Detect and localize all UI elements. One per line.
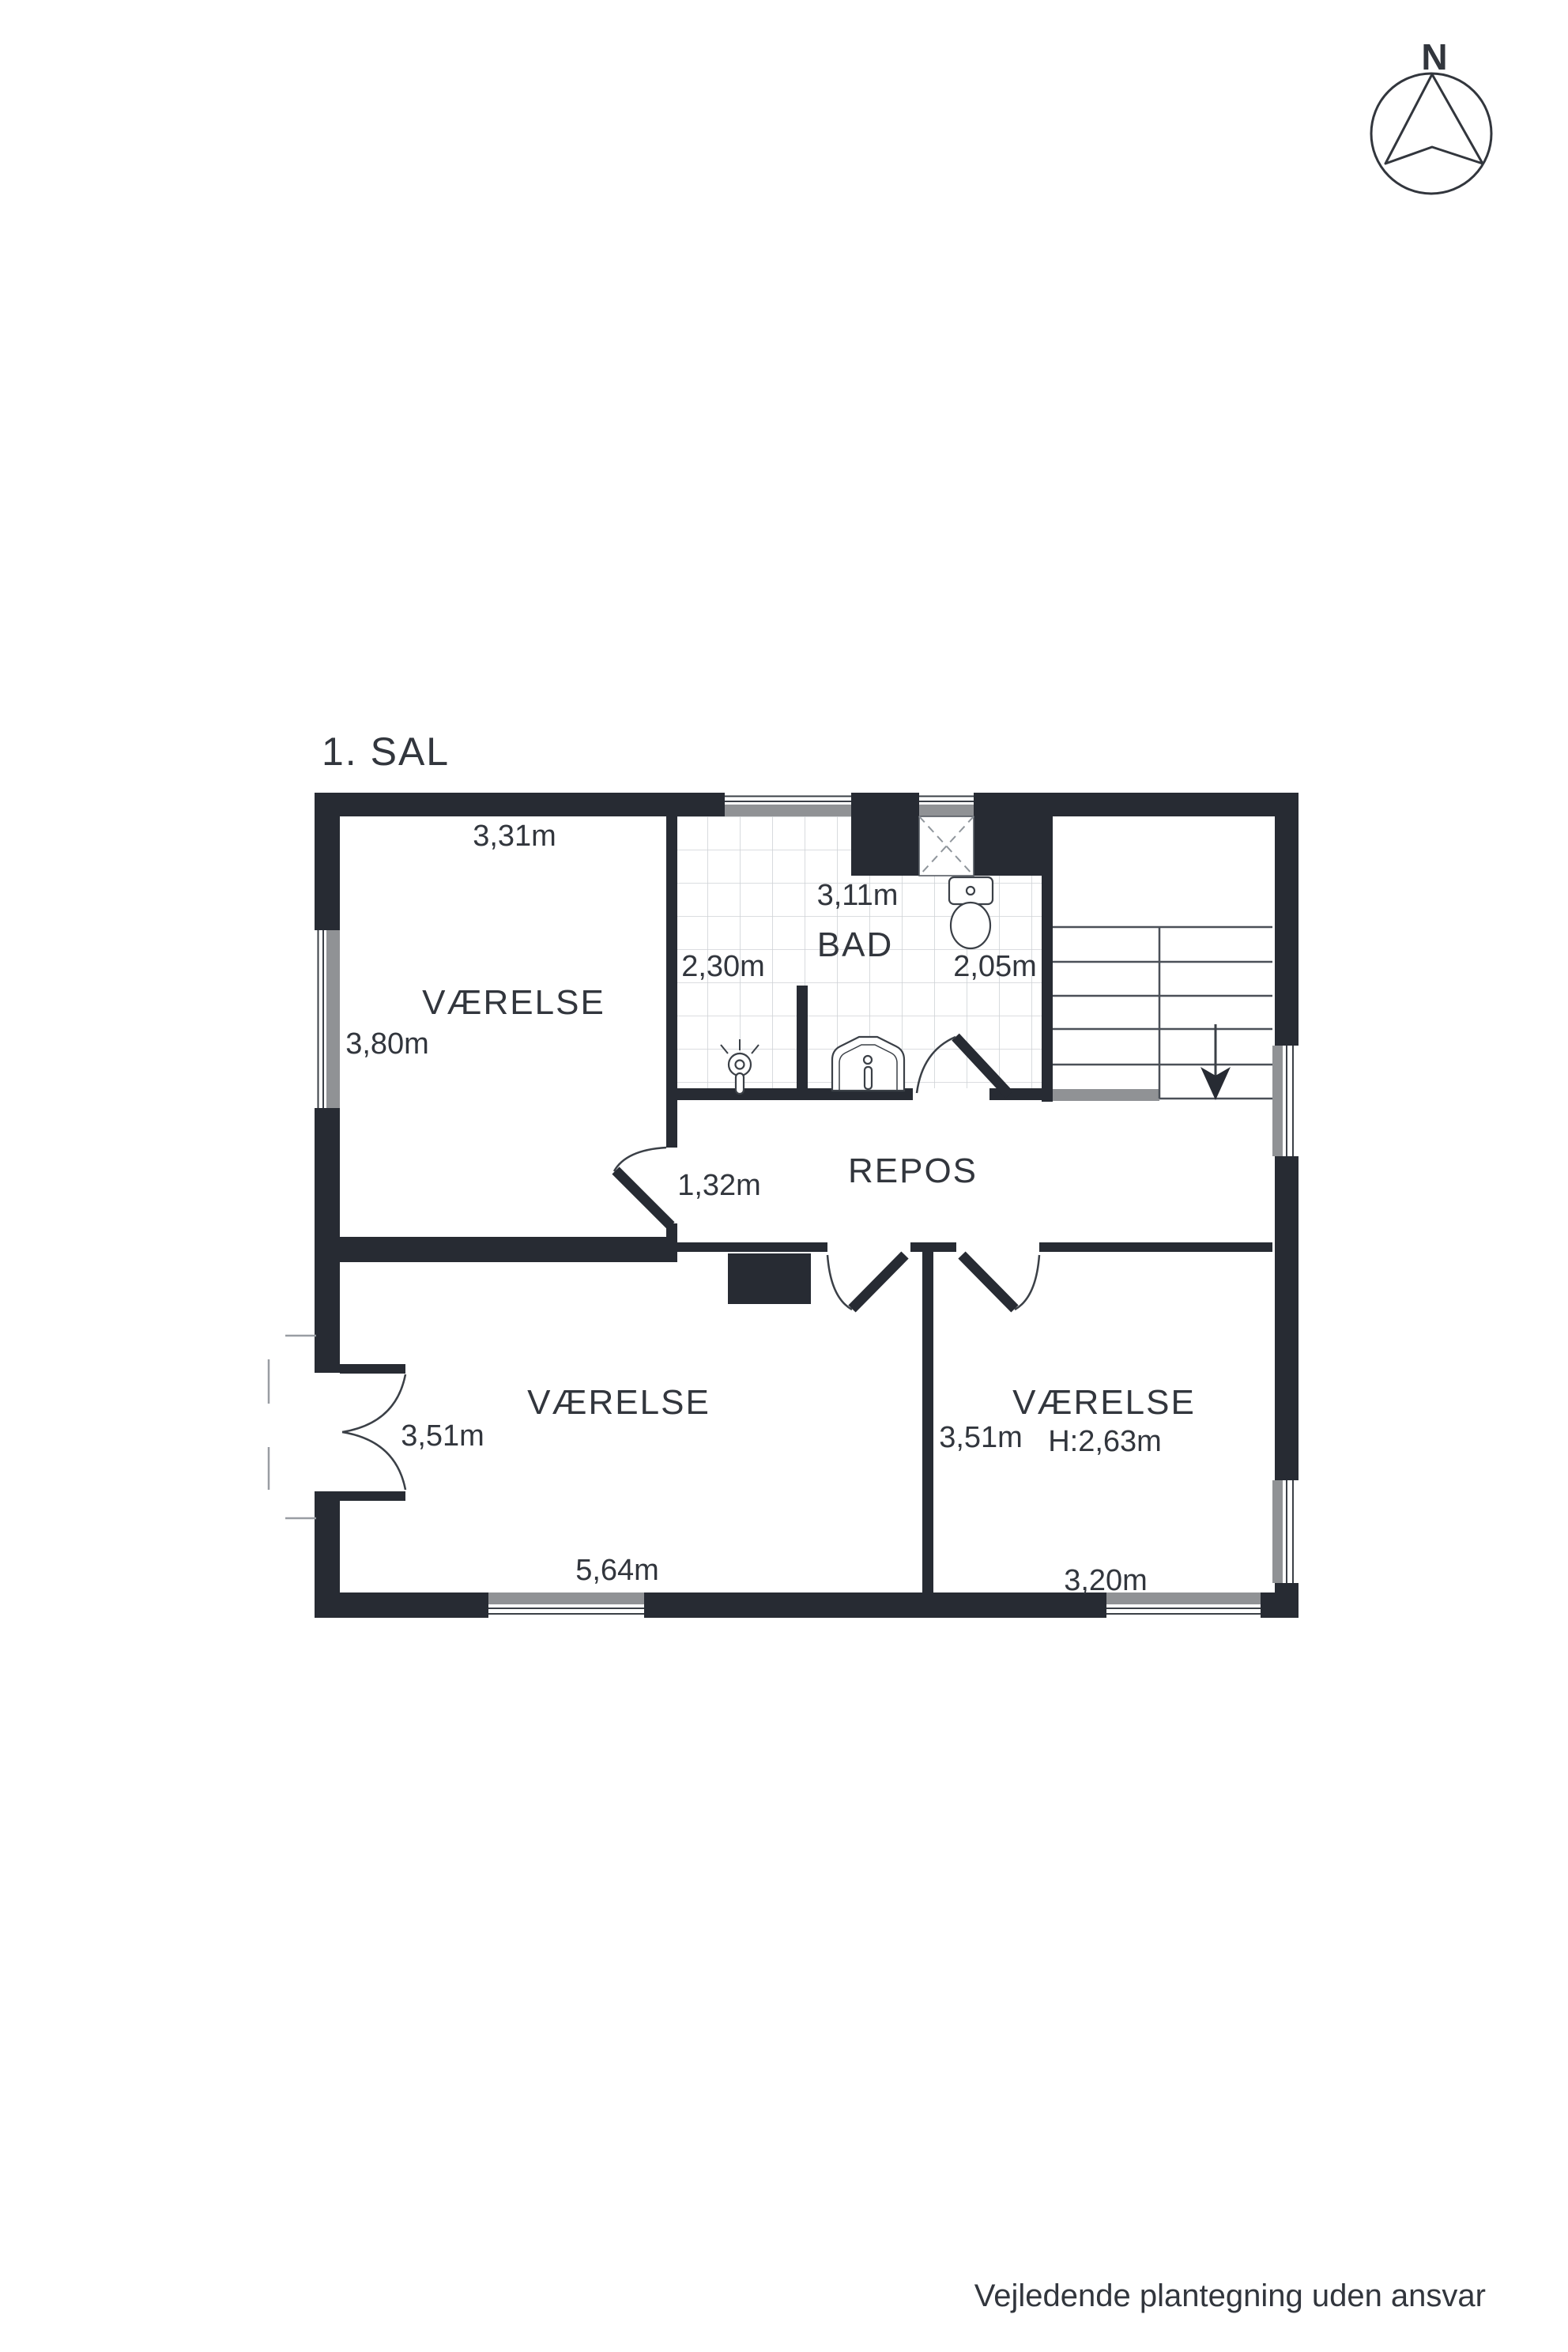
wall-repos-south-left (677, 1242, 827, 1252)
disclaimer-footer: Vejledende plantegning uden ansvar (974, 2278, 1486, 2313)
wall-stairwell-west (1042, 816, 1053, 1102)
dim-label-se-depth: 3,51m (939, 1421, 1023, 1454)
wall-bottom-left (315, 1592, 488, 1618)
wall-repos-south-right (1039, 1242, 1272, 1252)
floor-plan-drawing: N 1. SAL 3,31m VÆRELSE 3,80m 3,11m BAD 2… (0, 0, 1568, 2352)
double-door-post-top (340, 1364, 405, 1374)
page-title: 1. SAL (322, 729, 450, 774)
north-arrow: N (1371, 36, 1491, 194)
window-sill (919, 805, 974, 816)
toilet-fixture (949, 877, 993, 948)
door-room-se (962, 1255, 1039, 1310)
dim-label-nw-depth: 3,80m (345, 1027, 429, 1061)
wall-duct-block-a (851, 793, 919, 876)
wall-left-lower (315, 1491, 340, 1618)
dim-label-repos-passage: 1,32m (677, 1169, 761, 1202)
window-sill (326, 930, 340, 1108)
double-door-post-bottom (340, 1491, 405, 1501)
floor-plan-page: N 1. SAL 3,31m VÆRELSE 3,80m 3,11m BAD 2… (0, 0, 1568, 2352)
wall-bathroom-west (666, 816, 677, 1148)
dim-label-sw-depth: 3,51m (401, 1419, 484, 1453)
dim-label-bad-left: 2,30m (681, 950, 765, 983)
door-room-nw (614, 1148, 671, 1226)
stair-rail-band (1053, 1089, 1159, 1101)
dim-label-bad-width: 3,11m (817, 879, 899, 912)
window-sill (1272, 1480, 1283, 1583)
wall-bottom-right (1261, 1592, 1298, 1618)
wall-rooms-divider (922, 1252, 933, 1592)
wall-left-upper (315, 793, 340, 930)
wall-bottom-middle (644, 1592, 1106, 1618)
wall-right-middle (1275, 1156, 1298, 1480)
dim-label-se-ceiling: H:2,63m (1048, 1425, 1162, 1458)
north-label: N (1421, 36, 1447, 77)
wall-interior-thick (315, 1237, 677, 1262)
wall-top-left-segment (315, 793, 725, 816)
skylight-hatch-box (919, 816, 974, 876)
window-sill (1272, 1046, 1283, 1156)
dim-label-nw-width: 3,31m (473, 820, 556, 853)
dim-label-bad-right: 2,05m (953, 950, 1037, 983)
room-label-vaerelse-nw: VÆRELSE (422, 983, 605, 1022)
room-label-vaerelse-se: VÆRELSE (1012, 1383, 1196, 1422)
shower-partition-wall (797, 986, 808, 1088)
window-sill (725, 805, 851, 816)
dim-label-sw-width: 5,64m (575, 1554, 659, 1587)
window-sill (488, 1592, 644, 1604)
room-label-bad: BAD (817, 925, 893, 964)
wall-right-upper (1275, 793, 1298, 1046)
wall-repos-south-center (910, 1242, 956, 1252)
wall-top-right-segment (1042, 793, 1298, 816)
chimney-block (728, 1253, 811, 1304)
stairs (1053, 927, 1272, 1100)
door-room-sw (827, 1255, 905, 1310)
wall-duct-block-b (974, 793, 1042, 876)
room-label-vaerelse-sw: VÆRELSE (527, 1383, 710, 1422)
room-label-repos: REPOS (848, 1151, 978, 1190)
sink-fixture (832, 1037, 904, 1091)
dim-label-se-width: 3,20m (1064, 1564, 1148, 1597)
